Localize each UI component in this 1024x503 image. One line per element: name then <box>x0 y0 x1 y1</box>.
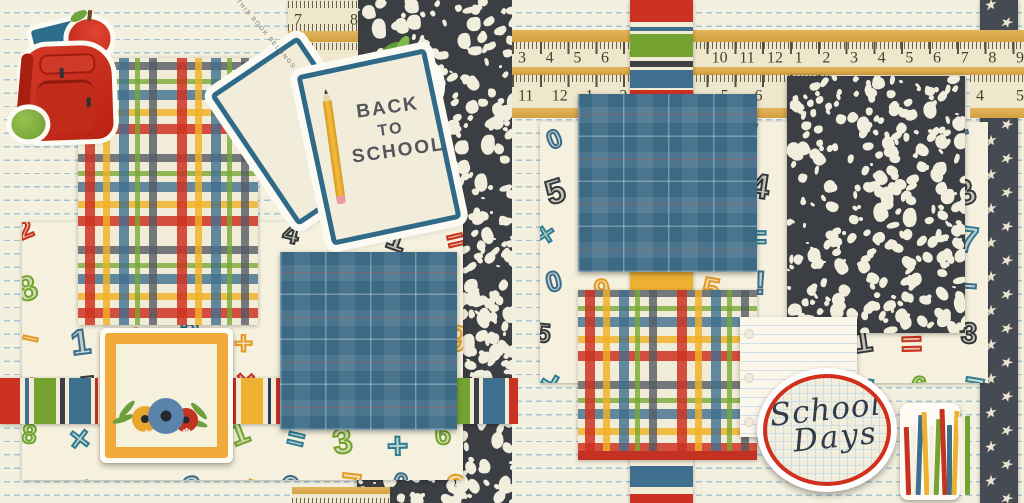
ruler-number: 5 <box>1016 87 1024 105</box>
ruler-number: 12 <box>552 87 568 105</box>
denim-plaid-paper <box>578 94 757 272</box>
marble-speckle <box>421 493 425 497</box>
number-doodle: 8 <box>22 270 42 308</box>
scrapbook-layout: 78 25!8×4−1=8×4−1=3+6−1=3+670925!8×4−1=8… <box>0 0 1024 503</box>
marble-speckle <box>809 82 821 92</box>
marble-speckle <box>373 482 376 484</box>
marble-speckle <box>794 309 798 314</box>
number-doodle: 0 <box>543 124 566 154</box>
ruler-wood-edge <box>512 67 1024 75</box>
marble-speckle <box>791 151 803 160</box>
star-icon: ★ <box>997 116 1014 134</box>
marble-speckle <box>813 125 823 134</box>
marble-speckle <box>873 291 881 299</box>
marble-speckle <box>496 264 500 267</box>
marble-speckle <box>930 205 935 214</box>
ruler-number: 8 <box>350 11 358 29</box>
ruler-number: 11 <box>518 87 533 105</box>
marble-speckle <box>792 253 804 266</box>
marble-speckle <box>801 298 809 307</box>
marble-speckle <box>865 108 873 117</box>
marble-speckle <box>862 142 874 151</box>
marble-speckle <box>903 97 914 107</box>
marble-speckle <box>503 352 510 359</box>
marble-speckle <box>921 251 934 264</box>
flower-frame-card: ✽ ✽ <box>100 328 233 463</box>
marble-speckle <box>831 76 839 82</box>
pencil-lead-icon <box>323 89 328 95</box>
marble-speckle <box>820 194 827 202</box>
marble-speckle <box>836 88 843 95</box>
ruler-numbers: 78 <box>288 6 358 31</box>
marble-speckle <box>844 231 857 245</box>
number-doodle: × <box>540 366 566 383</box>
school-days-label: School Days <box>757 368 897 492</box>
ruler <box>292 494 390 503</box>
marble-speckle <box>502 70 510 79</box>
marble-speckle <box>429 9 437 17</box>
number-doodle: 0 <box>391 469 410 480</box>
ruler-number: 6 <box>601 49 609 67</box>
marble-speckle <box>482 16 496 29</box>
marble-speckle <box>883 326 897 333</box>
ruler-number: 7 <box>294 11 302 29</box>
marble-speckle <box>806 99 815 108</box>
star-icon: ★ <box>997 184 1014 202</box>
marble-speckle <box>859 165 870 177</box>
marble-speckle <box>933 285 951 302</box>
number-doodle: = <box>128 473 150 480</box>
ruler-number: 12 <box>767 49 783 67</box>
marble-speckle <box>454 130 462 138</box>
marble-speckle <box>945 116 950 124</box>
marble-speckle <box>917 86 921 91</box>
marble-speckle <box>874 150 884 160</box>
pencil-eraser-icon <box>336 195 346 204</box>
marble-speckle <box>952 285 956 288</box>
back-to-school-text: BACK TO SCHOOL <box>344 91 437 170</box>
number-doodle: + <box>234 327 253 360</box>
marble-speckle <box>484 58 489 66</box>
ruler-numbers: 45 <box>970 81 1024 108</box>
ruler-number: 5 <box>573 49 581 67</box>
marble-speckle <box>872 128 879 135</box>
marble-speckle <box>914 129 920 134</box>
plaid-paper <box>578 290 757 460</box>
star-icon: ★ <box>997 320 1014 338</box>
marble-speckle <box>787 285 791 290</box>
number-doodle: + <box>386 427 408 464</box>
school-days-text: School Days <box>764 386 890 462</box>
star-icon: ★ <box>997 456 1014 474</box>
ruler-number: 1 <box>795 49 803 67</box>
marble-speckle <box>915 160 929 173</box>
star-icon: ★ <box>997 490 1014 503</box>
flower-accent-icon: ✽ <box>182 428 191 439</box>
marble-speckle <box>483 478 491 486</box>
left-page: 78 25!8×4−1=8×4−1=3+6−1=3+670925!8×4−1=8… <box>0 0 512 503</box>
marble-speckle <box>454 4 463 13</box>
marble-speckle <box>809 109 816 118</box>
orange-frame: ✽ ✽ <box>105 333 228 458</box>
number-doodle: 6 <box>274 470 303 480</box>
blue-flower-icon <box>148 398 184 434</box>
ruler-wood-edge <box>970 108 1024 118</box>
marble-speckle <box>374 0 389 11</box>
marble-speckle <box>803 94 809 100</box>
number-doodle: 3 <box>180 472 204 480</box>
star-icon: ★ <box>997 252 1014 270</box>
backpack-top-pocket <box>39 53 96 75</box>
marble-speckle <box>954 192 957 195</box>
marble-speckle <box>891 309 895 313</box>
marble-speckle <box>489 88 497 97</box>
marble-speckle <box>813 165 819 175</box>
marble-speckle <box>503 332 507 336</box>
marble-speckle <box>806 242 809 244</box>
marble-speckle <box>889 76 895 85</box>
marble-speckle <box>464 361 477 370</box>
marble-speckle <box>900 227 914 242</box>
right-page: ★★★★★★★★★★★★★★★★★★★★★★★★★★★★★★ 345678910… <box>512 0 1024 503</box>
zipper-pull-icon <box>59 68 63 78</box>
marble-speckle <box>481 197 485 200</box>
number-doodle: 5 <box>542 173 570 211</box>
marble-speckle <box>886 221 900 229</box>
book-spine <box>965 416 970 495</box>
marble-speckle <box>499 64 502 67</box>
marble-speckle <box>824 200 840 214</box>
marble-speckle <box>493 25 508 37</box>
marble-speckle <box>497 278 511 292</box>
ruler: 78 <box>288 0 358 31</box>
marble-speckle <box>480 30 487 39</box>
marble-speckle <box>870 302 880 311</box>
ruler-number: 4 <box>546 49 554 67</box>
marble-speckle <box>831 247 842 257</box>
marble-speckle <box>953 277 965 285</box>
marble-speckle <box>947 76 962 85</box>
denim-plaid-paper <box>280 252 457 430</box>
marble-speckle <box>502 48 512 58</box>
star-icon: ★ <box>997 14 1014 32</box>
marble-speckle <box>833 100 841 108</box>
marble-speckle <box>940 188 955 205</box>
ruler-number: 3 <box>518 49 526 67</box>
punch-hole <box>744 373 754 383</box>
marble-speckle <box>819 278 827 289</box>
marble-speckle <box>801 130 811 140</box>
marble-speckle <box>442 19 449 27</box>
ruler-number: 7 <box>961 49 969 67</box>
marble-speckle <box>958 174 965 185</box>
ruler-number: 2 <box>822 49 830 67</box>
apple-stem-icon <box>87 10 92 21</box>
marble-speckle <box>396 493 406 503</box>
number-doodle: 5 <box>540 320 552 348</box>
marble-speckle <box>862 228 872 238</box>
composition-paper-block <box>787 76 965 333</box>
marble-speckle <box>853 191 858 200</box>
backpack-strap <box>16 53 34 118</box>
marble-speckle <box>801 121 811 131</box>
marble-speckle <box>816 307 825 316</box>
punch-hole <box>744 417 754 427</box>
marble-speckle <box>480 247 487 254</box>
books-sticker <box>900 403 960 500</box>
marble-speckle <box>898 80 903 84</box>
number-doodle: 1 <box>71 474 97 480</box>
number-doodle: + <box>234 470 263 480</box>
marble-speckle <box>905 173 920 185</box>
marble-speckle <box>887 90 896 99</box>
marble-speckle <box>834 303 839 311</box>
ruler: 45 <box>970 75 1024 108</box>
marble-speckle <box>859 326 869 333</box>
backpack-sticker <box>12 20 120 146</box>
marble-speckle <box>815 95 825 105</box>
ruler-number: 4 <box>976 87 984 105</box>
ruler-number: 5 <box>905 49 913 67</box>
marble-speckle <box>902 207 918 228</box>
marble-speckle <box>898 108 911 118</box>
marble-speckle <box>809 202 815 207</box>
marble-speckle <box>859 217 864 222</box>
pencil-tip-icon <box>321 88 332 101</box>
star-icon: ★ <box>982 405 998 422</box>
marble-speckle <box>834 113 847 125</box>
marble-speckle <box>952 85 959 93</box>
flower-accent-icon: ✽ <box>142 430 151 441</box>
number-doodle: 7 <box>338 469 363 480</box>
number-doodle: 9 <box>442 468 463 480</box>
marble-speckle <box>433 0 441 8</box>
number-doodle: × <box>540 220 556 251</box>
marble-speckle <box>470 229 479 239</box>
ruler-number: 10 <box>712 49 728 67</box>
star-icon: ★ <box>982 473 998 490</box>
star-icon: ★ <box>982 0 998 14</box>
star-icon: ★ <box>997 422 1014 440</box>
marble-speckle <box>501 155 511 164</box>
marble-speckle <box>468 46 482 56</box>
star-icon: ★ <box>997 218 1014 236</box>
number-doodle: 2 <box>22 222 37 244</box>
school-days-oval: School Days <box>763 374 891 486</box>
number-doodle: − <box>22 324 41 355</box>
marble-speckle <box>454 140 469 156</box>
number-doodle: 7 <box>960 372 987 383</box>
marble-speckle <box>501 7 506 12</box>
marble-speckle <box>478 99 488 108</box>
marble-speckle <box>882 300 897 313</box>
ruler-number: 11 <box>739 49 754 67</box>
marble-speckle <box>466 493 473 499</box>
ruler-ticks <box>292 498 390 503</box>
ruler-number: 6 <box>933 49 941 67</box>
marble-speckle <box>936 269 947 278</box>
number-doodle: 0 <box>543 266 565 297</box>
marble-speckle <box>487 184 494 191</box>
marble-speckle <box>952 153 960 164</box>
striped-ribbon-end <box>512 378 518 424</box>
marble-speckle <box>463 123 469 129</box>
marble-speckle <box>787 218 794 227</box>
ruler-wood-edge <box>292 487 390 494</box>
marble-speckle <box>843 259 846 262</box>
number-doodle: 6 <box>909 372 928 383</box>
number-doodle: × <box>68 422 92 458</box>
marble-speckle <box>891 243 904 254</box>
star-icon: ★ <box>997 388 1014 406</box>
marble-speckle <box>357 479 363 485</box>
star-icon: ★ <box>997 286 1014 304</box>
marble-speckle <box>870 163 873 166</box>
marble-speckle <box>468 171 474 178</box>
marble-speckle <box>959 120 965 129</box>
marble-speckle <box>903 133 910 142</box>
star-icon: ★ <box>997 150 1014 168</box>
marble-speckle <box>842 230 847 235</box>
marble-speckle <box>922 101 938 120</box>
ruler-wood-edge <box>512 30 1024 42</box>
ruler-number: 4 <box>878 49 886 67</box>
frame-inner-paper: ✽ ✽ <box>116 344 217 447</box>
marble-speckle <box>954 132 965 149</box>
marble-speckle <box>501 441 512 454</box>
marble-speckle <box>481 135 496 155</box>
marble-speckle <box>787 269 791 273</box>
number-doodle: 8 <box>22 420 38 448</box>
marble-speckle <box>809 299 816 306</box>
punch-hole <box>744 329 754 339</box>
ruler-number: 9 <box>1016 49 1024 67</box>
marble-speckle <box>894 207 902 215</box>
pencil-icon <box>323 100 345 196</box>
number-doodle: 1 <box>69 324 93 361</box>
marble-speckle <box>464 443 469 452</box>
plaid-red-edge <box>578 451 757 460</box>
ruler-number: 8 <box>988 49 996 67</box>
marble-speckle <box>802 223 806 228</box>
marble-speckle <box>797 173 808 184</box>
ruler: 3456789101112123456789 <box>512 42 1024 67</box>
marble-speckle <box>853 90 861 98</box>
zipper-pull-icon <box>87 97 91 107</box>
star-icon: ★ <box>982 439 998 456</box>
marble-speckle <box>490 211 493 214</box>
ruler-number: 3 <box>850 49 858 67</box>
marble-speckle <box>467 114 475 122</box>
marble-speckle <box>450 97 461 107</box>
marble-speckle <box>407 15 422 31</box>
back-to-school-book-sticker: THIS BOOK BELONGS TO BACK TO SCHOOL <box>237 32 448 233</box>
ruler-numbers: 3456789101112123456789 <box>512 46 1024 67</box>
marble-speckle <box>847 154 855 164</box>
marble-speckle <box>924 215 935 225</box>
star-icon: ★ <box>997 354 1014 372</box>
number-doodle: − <box>23 466 53 480</box>
marble-speckle <box>789 161 797 170</box>
